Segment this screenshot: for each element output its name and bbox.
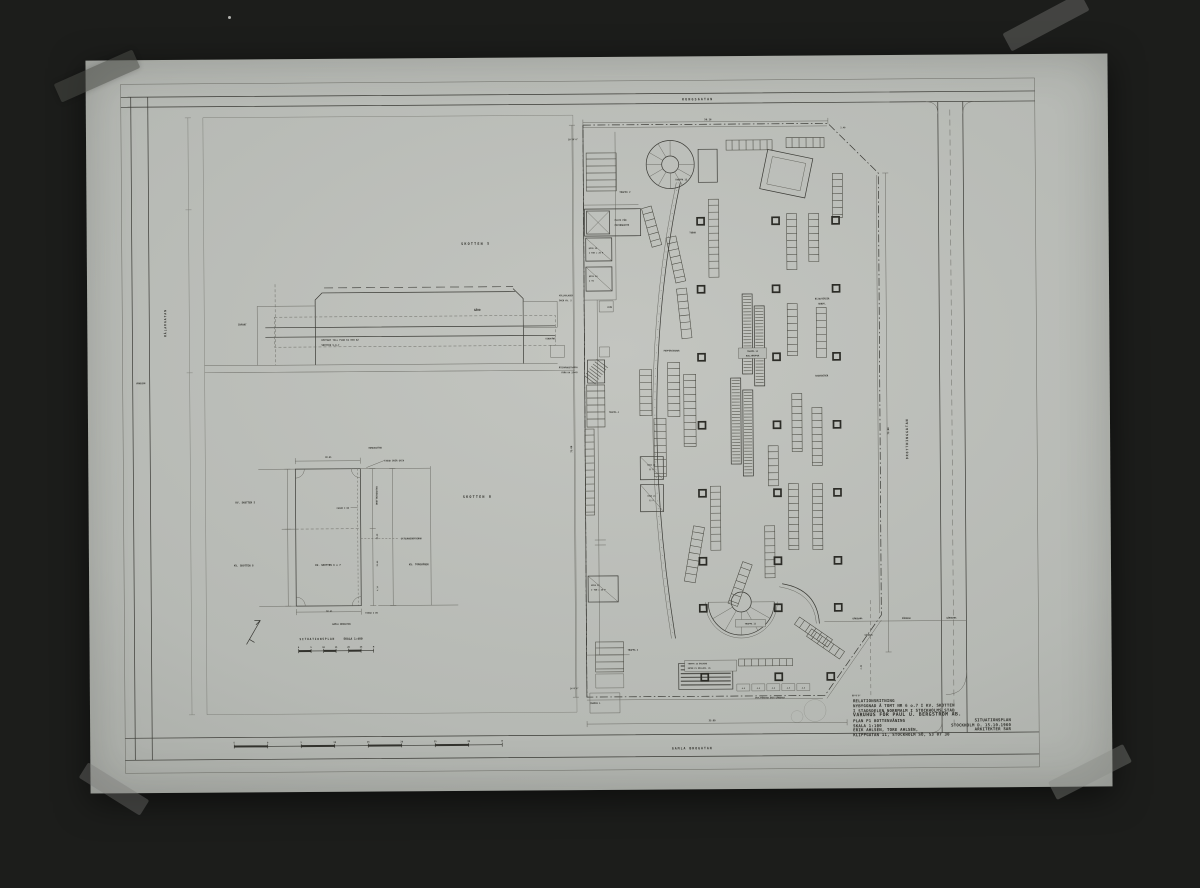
plan-label: 2 TO	[589, 281, 595, 283]
street-label-kungsgatan: KUNGSGATAN	[682, 97, 713, 101]
situationsplan-scale: SKALA 1:400	[343, 637, 362, 641]
display-fixture	[765, 526, 775, 578]
plan-label: VÄNDZON	[864, 634, 873, 637]
plan-label: GÅRD	[474, 307, 481, 312]
plan-label: FASAD ÖVER GATA	[384, 459, 404, 462]
plan-label: 75.00	[887, 427, 890, 435]
plan-label: KV. SKOTTEN 6 o 7	[315, 563, 341, 567]
column-marker	[835, 604, 842, 611]
column-marker	[699, 558, 706, 565]
display-fixture	[786, 137, 824, 147]
column-marker	[834, 489, 841, 496]
plan-label: VINDFÅNG	[545, 337, 556, 340]
detail-circles	[791, 699, 826, 722]
plan-label: TRAPPA 14	[747, 350, 759, 353]
scalebar-number: 25	[360, 646, 363, 649]
title-block-text: ARKITEKTER SAR	[975, 728, 1012, 733]
scalebar-number: 25	[434, 740, 437, 743]
plan-label: FRÅN KA 25×45	[561, 371, 578, 374]
plan-label: 4.5	[772, 688, 775, 690]
column-marker	[773, 285, 780, 292]
display-fixture	[812, 483, 822, 549]
scalebar-number: 20	[400, 740, 403, 743]
display-fixture	[668, 362, 680, 416]
main-scalebar: 5051015202530M	[234, 740, 504, 749]
plan-label: TRAPPA 1	[590, 702, 601, 705]
plan-label: TRAPPA 10 BALKONG	[688, 662, 708, 665]
display-fixture	[586, 153, 616, 191]
plan-label: SKYLTFÖNSTER ÖVER GÅNGBANA	[755, 696, 785, 699]
plan-label: 4.5	[742, 688, 745, 690]
column-marker	[772, 217, 779, 224]
display-fixture	[587, 385, 605, 427]
block-label-skotten-5: SKOTTEN 5	[461, 242, 490, 246]
scalebar-number: 5	[310, 646, 312, 649]
plan-label: 4.5	[802, 688, 805, 690]
plan-label: STÄD	[607, 306, 613, 309]
display-fixture	[684, 526, 704, 583]
plan-label: 4.5	[757, 688, 760, 690]
title-block: RELATIONSRITNING NYBYGGNAD Å TOMT NR 6 o…	[853, 698, 1011, 738]
plan-label: 20°16'6"	[568, 139, 579, 141]
plan-label: ÅTERVÄNDSTRAPPA	[559, 366, 579, 369]
tape-strip	[1002, 0, 1089, 51]
rotated-room	[760, 149, 813, 197]
plan-label: ENTRÉ P1 MELLANV. 45	[688, 667, 712, 670]
plan-label: HISS 24	[589, 276, 598, 278]
plan-label: FASAD I BV	[337, 507, 350, 510]
scalebar-number: 10	[333, 741, 336, 744]
plan-label: TRAPPA 4	[609, 411, 620, 414]
street-label-gamla-brogatan: GAMLA BROGATAN	[672, 746, 713, 750]
plan-label: PAPPERSVAROR	[664, 349, 681, 352]
plan-label: HISS 22	[591, 585, 600, 587]
plan-label: ÖVER KV. 5	[559, 299, 572, 302]
plan-label: RULLTRAPPOR	[746, 354, 760, 357]
column-marker	[775, 604, 782, 611]
plan-label: KÄLLARLAGER	[559, 294, 574, 297]
street-label-malargatan: MÅLARGATAN	[162, 309, 167, 337]
plan-label: HISS 23	[589, 248, 598, 250]
scalebar-number: 0	[298, 646, 300, 649]
street-label-drottninggatan: DROTTNINGGATAN	[905, 418, 909, 459]
plan-label: INFART	[238, 323, 247, 326]
plan-label: FASAD I BV	[365, 612, 378, 615]
title-block-text: KLIPPGATAN 11, STOCKHOLM SÖ, 53 07 30	[853, 733, 950, 739]
drawing-sheet: 5051015202530M 0510152025M KUNGSGATANGAM…	[85, 53, 1112, 793]
plan-label: 2 TON = 25 P	[589, 252, 604, 254]
plan-label: 4.14	[377, 585, 379, 590]
plan-label: TOBAK	[689, 231, 696, 234]
column-marker	[833, 353, 840, 360]
plan-label: TRAPPA 3	[628, 649, 639, 652]
plan-label: GATUUNDERBYGGNAD	[401, 537, 423, 540]
north-arrow-icon	[246, 620, 260, 644]
column-marker	[834, 557, 841, 564]
column-marker	[698, 354, 705, 361]
skotten5-building	[204, 282, 565, 366]
column-marker	[698, 286, 705, 293]
display-fixture	[585, 429, 595, 515]
display-fixture	[812, 407, 822, 465]
column-marker	[699, 490, 706, 497]
scalebar-number: 15	[367, 741, 370, 744]
column-marker	[774, 489, 781, 496]
display-fixture	[816, 307, 826, 357]
plan-label: 56.16	[704, 118, 712, 121]
scalebar-number: 20	[347, 646, 350, 649]
plan-label: 2 TON = 25 P	[591, 589, 606, 591]
plan-label: 60°0'0"	[852, 695, 862, 697]
plan-label: 30.48	[377, 533, 379, 540]
scalebar-number: 30	[467, 740, 470, 743]
plan-label: VÄNDZON	[136, 382, 146, 385]
display-fixture	[708, 199, 719, 277]
semicircular-stair-trappa12	[705, 592, 777, 639]
scalebar-number: M	[373, 646, 375, 649]
main-plan-core	[583, 123, 820, 713]
display-fixture	[684, 374, 697, 446]
plan-label: KÖRBANA	[902, 617, 912, 620]
situationsplan-caption: SITUATIONSPLAN	[299, 637, 335, 641]
plan-label: 58.41	[326, 611, 333, 613]
plan-label: 38.95	[325, 457, 332, 459]
plan-label: TRAPPA 13	[675, 178, 688, 181]
plan-label: 73.00	[570, 445, 573, 453]
column-marker	[775, 673, 782, 680]
display-fixture	[788, 484, 798, 550]
scalebar-number: 5	[301, 741, 303, 744]
plan-label: KV. SKOTTEN 8	[234, 563, 254, 567]
plan-label: BIJOUTERIER	[815, 297, 830, 300]
column-marker	[827, 673, 834, 680]
spiral-stair-trappa13	[646, 140, 694, 188]
sheet-frame	[121, 78, 1040, 773]
photo-background: 5051015202530M 0510152025M KUNGSGATANGAM…	[0, 0, 1200, 888]
plan-label: KV. SKOTTEN 5	[236, 500, 256, 504]
display-fixture	[787, 304, 797, 356]
plan-label: GÅNGBANA	[852, 617, 863, 620]
display-fixtures-layer	[583, 137, 846, 672]
plan-label: GAMLA BROGATAN	[332, 623, 351, 626]
scalebar-number: 0	[267, 741, 269, 744]
column-marker	[698, 422, 705, 429]
plan-label: PATERNOSTER	[615, 224, 630, 227]
column-marker	[773, 421, 780, 428]
display-fixture	[792, 394, 802, 452]
situationsplan-scalebar: 0510152025M	[298, 646, 375, 654]
scalebar-number: 15	[335, 646, 338, 649]
plan-label: HISS 21	[648, 496, 657, 498]
scalebar-number: M	[502, 740, 504, 743]
plan-label: 21.00	[377, 560, 379, 567]
plan-label: KV. TORGVÅGEN	[409, 561, 429, 566]
block-label-skotten-8: SKOTTEN 8	[463, 495, 492, 499]
plan-label: KUNGSGATAN	[369, 447, 383, 450]
scalebar-number: 10	[322, 646, 325, 649]
plan-label: 14°0'6"	[570, 688, 580, 690]
plan-label: 4.5	[787, 688, 790, 690]
situation-plan	[245, 457, 458, 644]
display-fixture	[710, 486, 720, 550]
column-marker	[832, 217, 839, 224]
display-fixture	[809, 213, 819, 261]
plan-label: TRAPPA 2	[619, 191, 631, 194]
plan-label: GÅNGBANA	[946, 617, 957, 620]
display-fixture	[641, 206, 661, 247]
plan-label: PLATS FÖR	[615, 219, 628, 222]
column-marker	[833, 421, 840, 428]
plan-label: UPPFART TILL PLAN K1 OCH K2	[321, 339, 359, 342]
display-fixture	[654, 419, 666, 477]
display-fixture	[666, 236, 686, 283]
plan-label: SOUVENIRER	[815, 374, 829, 377]
column-marker	[697, 218, 704, 225]
street-lines	[121, 91, 1040, 760]
plan-label: DROTTNINGGATAN	[375, 486, 378, 505]
plan-label: HANDV.	[818, 302, 826, 305]
display-fixture	[768, 446, 778, 486]
display-fixture	[676, 288, 692, 339]
plan-label: TRAPPA 12	[745, 622, 757, 625]
escalators-trappa14	[730, 294, 765, 476]
plan-label: HISS 19	[647, 465, 656, 467]
photo-speck	[228, 16, 231, 19]
site-outline	[185, 115, 577, 715]
scalebar-number: 5	[234, 742, 236, 745]
display-fixture	[640, 370, 652, 416]
column-marker	[833, 285, 840, 292]
column-grid-layer	[697, 217, 842, 681]
display-fixture	[787, 214, 797, 270]
plan-label: 35.00	[709, 719, 717, 722]
column-marker	[774, 557, 781, 564]
plan-drawing: 5051015202530M 0510152025M KUNGSGATANGAM…	[85, 53, 1112, 793]
display-fixture	[726, 140, 772, 150]
plan-label: 2.40	[840, 127, 846, 129]
plan-label: 4.50	[861, 664, 863, 669]
display-fixture	[739, 659, 793, 666]
display-fixture	[832, 173, 842, 217]
plan-label: SKOTTEN 5,6,7	[321, 344, 340, 347]
column-marker	[773, 353, 780, 360]
